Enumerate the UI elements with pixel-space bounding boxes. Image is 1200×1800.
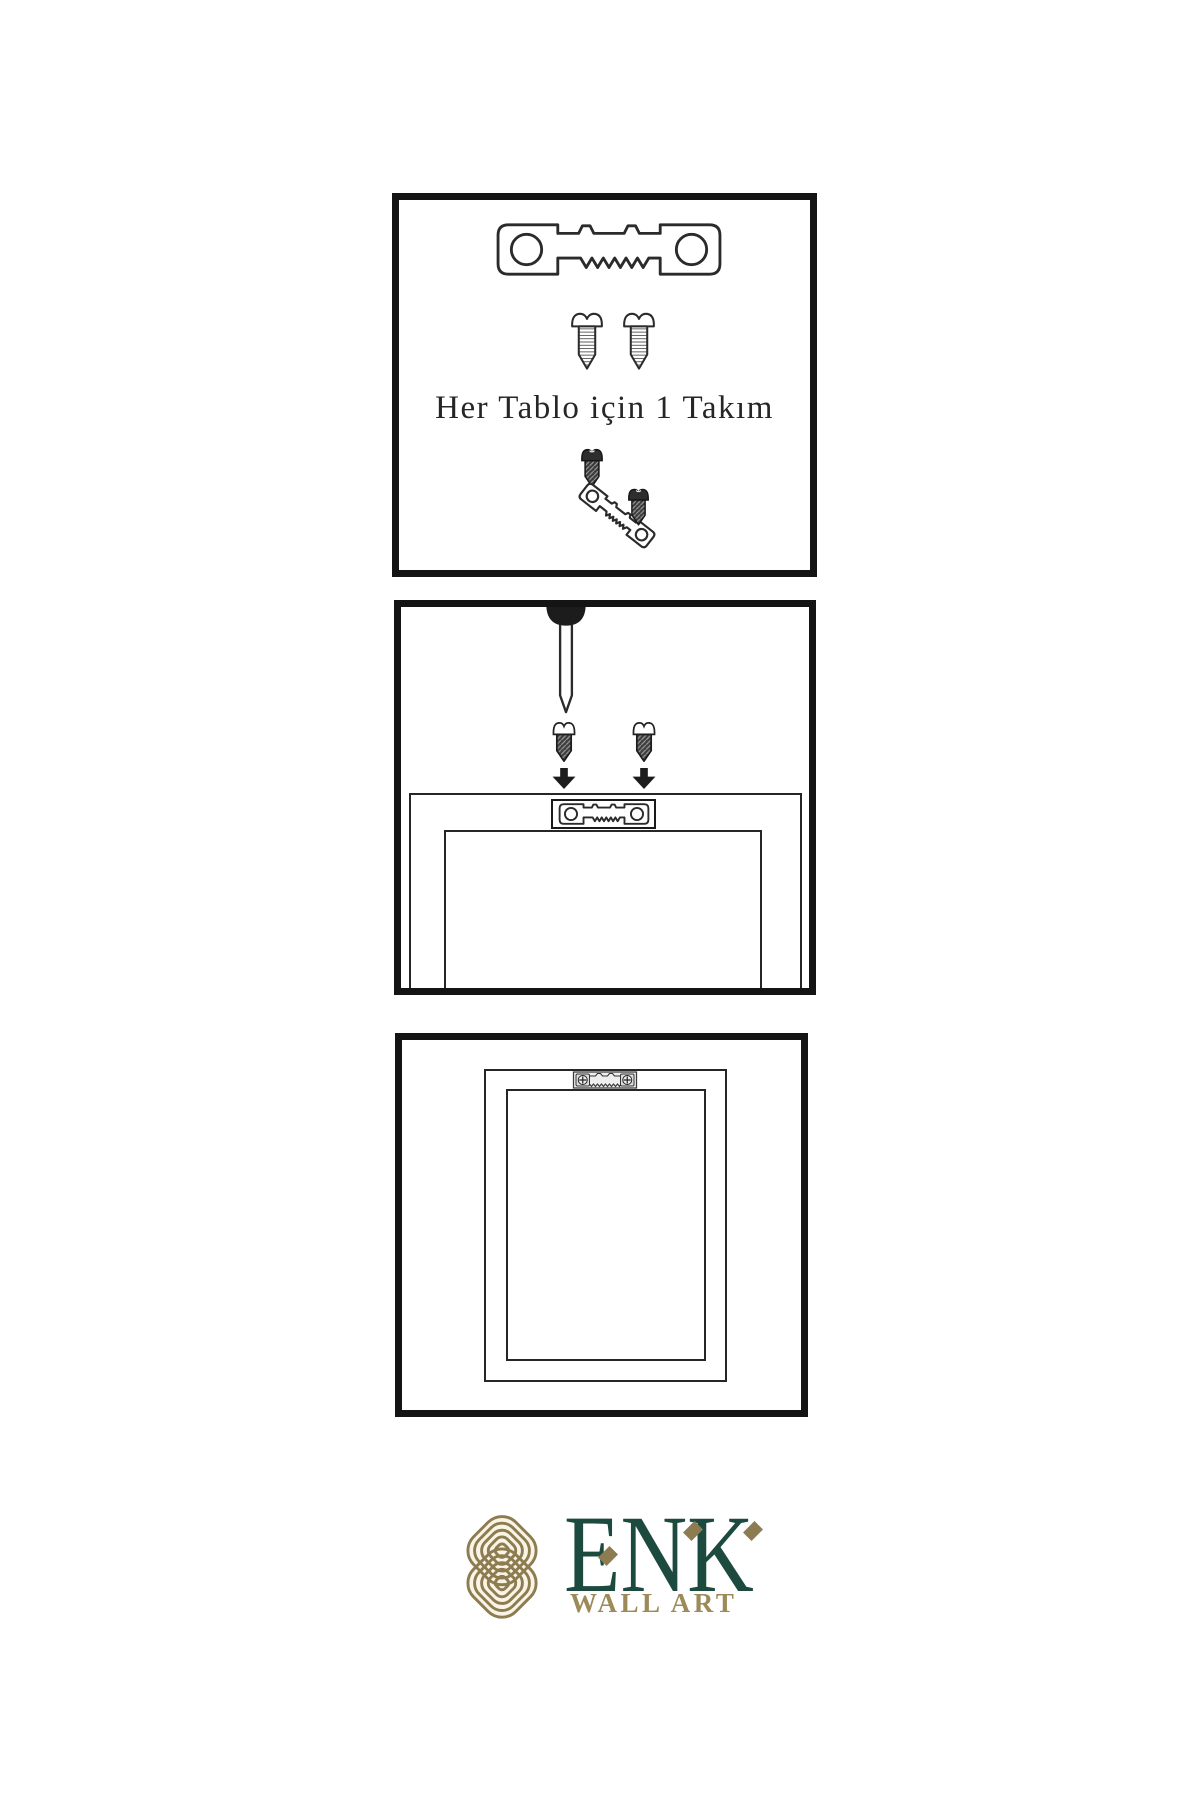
frame-inner: [506, 1089, 706, 1361]
arrow-down-icon: [551, 768, 577, 789]
instruction-sheet: Her Tablo için 1 Takım: [0, 0, 1200, 1800]
install-step-panel: [394, 600, 816, 995]
knot-emblem-icon: [438, 1502, 566, 1630]
brand-logo: ENK WALL ART: [428, 1496, 798, 1651]
sawtooth-hanger-icon: [491, 222, 727, 277]
frame-back-inner: [444, 830, 762, 988]
sawtooth-hanger-icon: [558, 803, 650, 825]
mounted-bracket-icon: [572, 1071, 638, 1089]
screw-outline-icon: [621, 305, 657, 379]
nail-icon: [544, 607, 588, 717]
screw-dark-icon: [551, 721, 577, 765]
hung-frame-panel: [395, 1033, 808, 1417]
screw-dark-icon: [627, 487, 650, 529]
kit-caption: Her Tablo için 1 Takım: [399, 390, 810, 427]
arrow-down-icon: [631, 768, 657, 789]
screw-outline-icon: [569, 305, 605, 379]
hanger-mount-area: [551, 799, 656, 829]
screw-dark-icon: [631, 721, 657, 765]
kit-contents-panel: Her Tablo için 1 Takım: [392, 193, 817, 577]
brand-subtitle: WALL ART: [570, 1588, 737, 1619]
